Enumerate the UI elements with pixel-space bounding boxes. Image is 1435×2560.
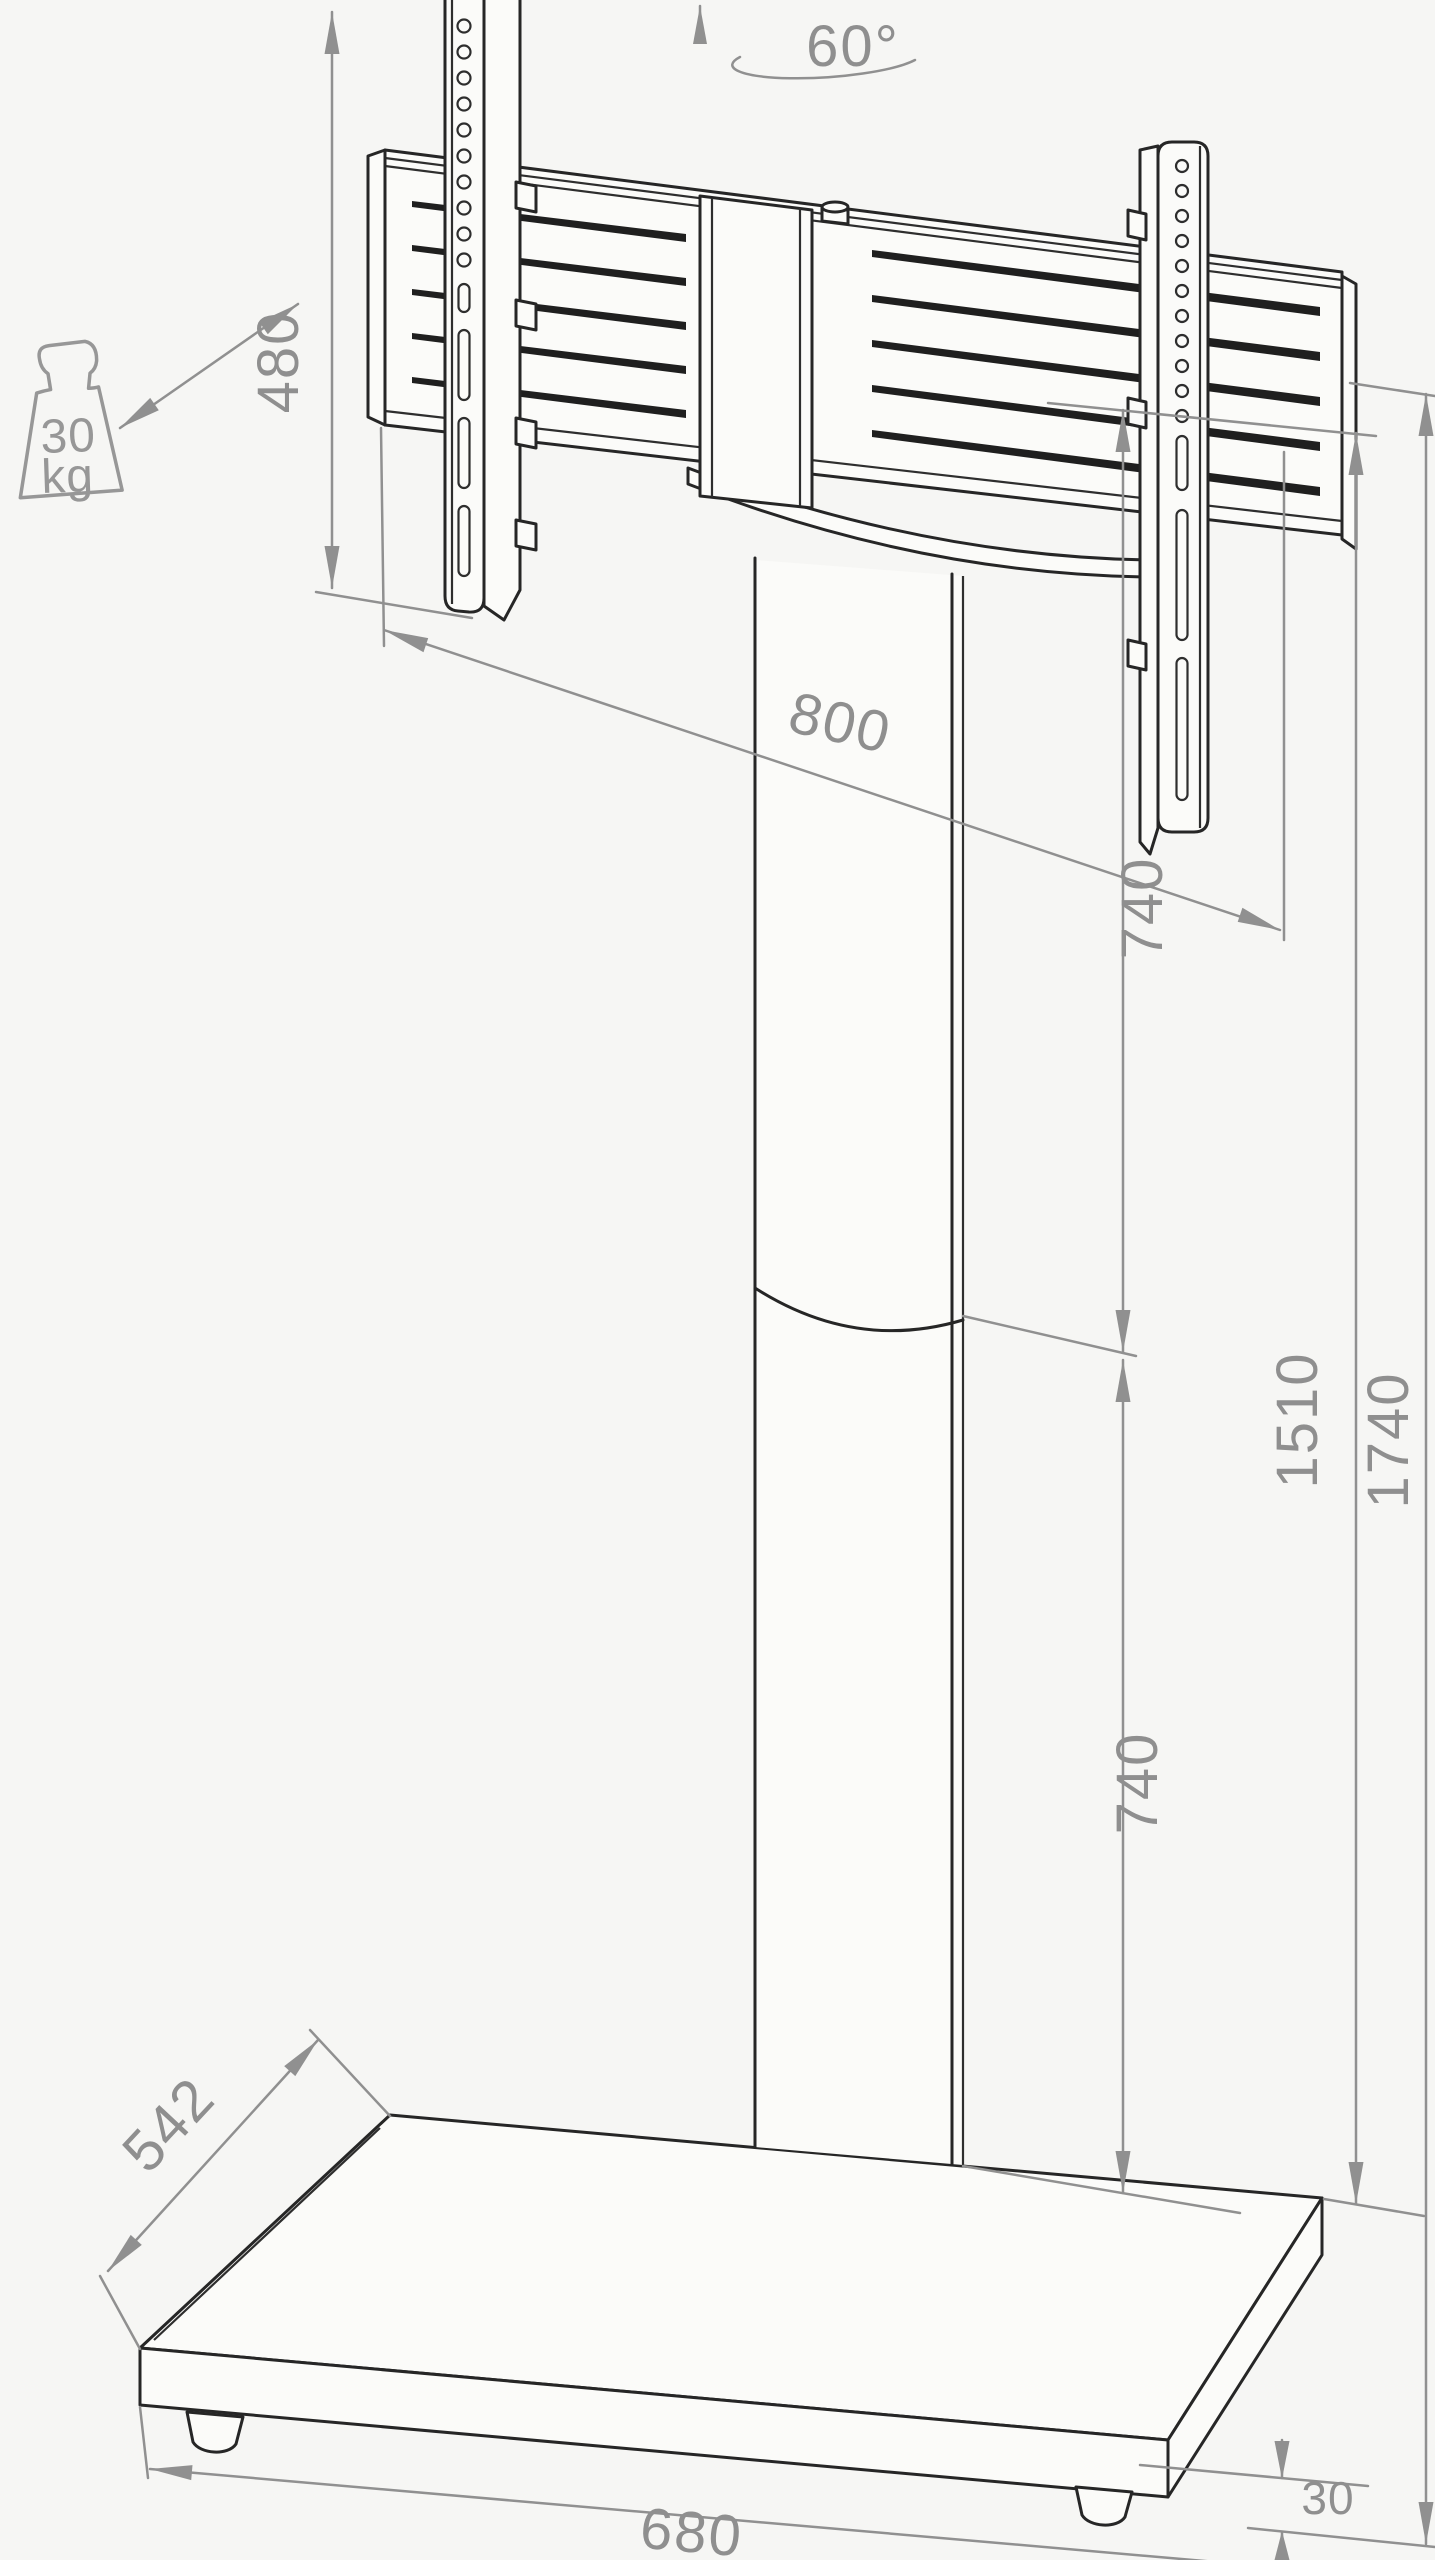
dim-1740: 1740	[1350, 383, 1435, 2544]
crossbar-left-endcap	[368, 150, 385, 425]
dim-542-ext-back	[310, 2030, 390, 2116]
base-foot-left	[187, 2412, 243, 2452]
base-foot-right	[1076, 2487, 1132, 2525]
dim-label-30: 30	[1301, 2472, 1354, 2524]
locking-knob	[822, 202, 848, 224]
technical-drawing-canvas: 60° 480 30 kg	[0, 0, 1435, 2560]
vesa-rail-left	[445, 0, 536, 620]
floor-ref-line	[1248, 2528, 1435, 2547]
dim-680-ext-left	[140, 2407, 148, 2478]
base-plate	[140, 2115, 1322, 2525]
rail-right-flange	[1140, 146, 1158, 854]
dim-542-ext-front	[100, 2276, 140, 2349]
dim-label-740-upper: 740	[1110, 857, 1175, 960]
dim-1740-ref-top	[1350, 383, 1435, 396]
dim-label-542: 542	[110, 2065, 228, 2184]
column-body	[755, 560, 963, 2165]
dim-740-joint-leader	[963, 1316, 1136, 1356]
dim-740-lower: 740	[963, 1360, 1240, 2213]
center-mount-plate	[700, 196, 812, 508]
dim-label-680: 680	[638, 2496, 746, 2560]
angle-label: 60°	[806, 14, 900, 79]
rail-left-face	[445, 0, 484, 612]
crossbar-right-endcap	[1342, 276, 1356, 549]
column	[755, 558, 963, 2165]
dim-1510-ref-bottom	[1324, 2199, 1424, 2216]
dim-cropped-top	[693, 6, 707, 44]
dim-1510: 1510	[1265, 433, 1424, 2216]
dim-label-1740: 1740	[1356, 1371, 1421, 1508]
load-unit-label: kg	[40, 449, 95, 504]
dim-800-ext-left	[381, 428, 384, 646]
dim-label-480: 480	[246, 311, 311, 414]
vesa-rail-right	[1128, 142, 1208, 854]
dim-label-740-lower: 740	[1105, 1732, 1170, 1835]
swivel-angle-indicator: 60°	[732, 14, 915, 79]
weight-icon: 30 kg	[15, 340, 123, 504]
technical-drawing-page: 60° 480 30 kg	[0, 0, 1435, 2560]
dim-label-1510: 1510	[1265, 1351, 1330, 1488]
